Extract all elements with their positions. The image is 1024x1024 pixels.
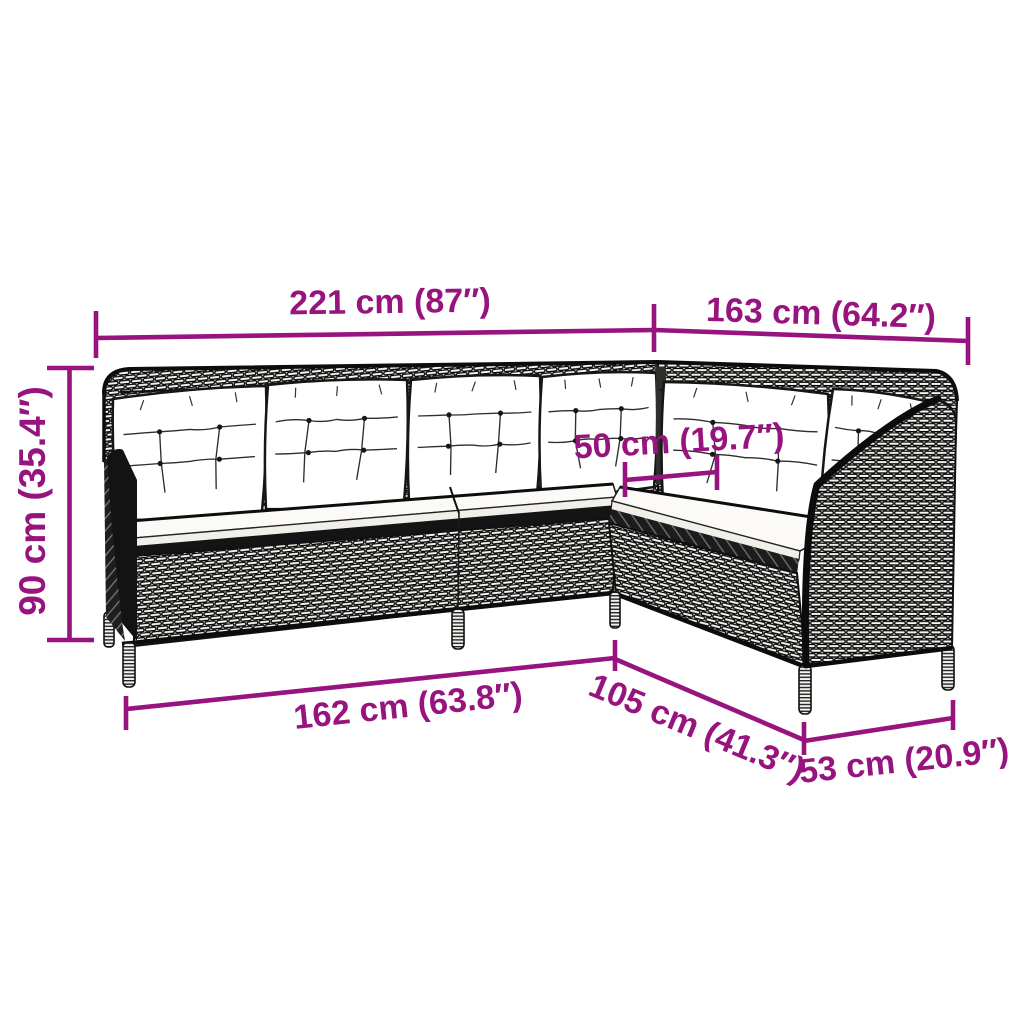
svg-text:163 cm (64.2″): 163 cm (64.2″) xyxy=(706,291,937,336)
svg-text:221 cm (87″): 221 cm (87″) xyxy=(289,282,491,323)
svg-text:90 cm (35.4″): 90 cm (35.4″) xyxy=(12,386,53,616)
svg-text:162 cm (63.8″): 162 cm (63.8″) xyxy=(292,675,525,737)
svg-text:53 cm (20.9″): 53 cm (20.9″) xyxy=(797,731,1011,791)
